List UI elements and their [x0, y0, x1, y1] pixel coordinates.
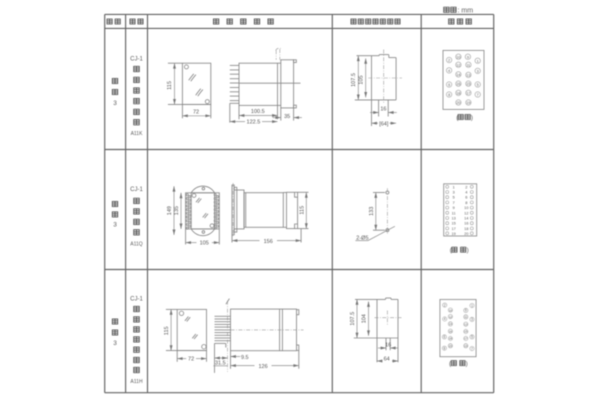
- svg-text:2: 2: [448, 59, 450, 63]
- svg-text:115: 115: [164, 326, 170, 335]
- svg-text:16: 16: [464, 222, 468, 226]
- svg-text:17: 17: [466, 91, 470, 95]
- svg-text:64: 64: [384, 356, 390, 362]
- svg-text:8: 8: [444, 346, 446, 350]
- svg-text:14: 14: [449, 322, 453, 326]
- svg-text:19: 19: [451, 232, 455, 236]
- svg-text:3: 3: [113, 340, 117, 347]
- svg-text:9: 9: [467, 55, 469, 59]
- svg-text:CJ-1: CJ-1: [130, 187, 143, 193]
- svg-text:4: 4: [444, 317, 446, 321]
- svg-text:18: 18: [449, 337, 453, 341]
- svg-text:6: 6: [444, 335, 446, 339]
- svg-text:3: 3: [477, 69, 479, 73]
- svg-text:9: 9: [465, 309, 467, 313]
- svg-text:CJ-1: CJ-1: [130, 296, 143, 302]
- svg-text:13: 13: [464, 322, 468, 326]
- svg-text:3: 3: [113, 222, 117, 229]
- svg-text:15: 15: [464, 330, 468, 334]
- svg-text:8: 8: [448, 93, 450, 97]
- svg-text:12: 12: [464, 211, 468, 215]
- svg-text:12: 12: [456, 63, 460, 67]
- svg-text:72: 72: [193, 109, 199, 115]
- svg-text:A11Q: A11Q: [130, 241, 143, 247]
- svg-text:16: 16: [449, 329, 453, 333]
- svg-text:3: 3: [113, 100, 117, 107]
- svg-text:107.5: 107.5: [350, 312, 356, 326]
- svg-text:: mm: : mm: [458, 7, 474, 14]
- svg-text:122.5: 122.5: [247, 120, 261, 126]
- svg-text:10: 10: [449, 308, 453, 312]
- svg-text:20: 20: [449, 344, 453, 348]
- svg-text:16: 16: [385, 343, 391, 349]
- svg-text:133: 133: [369, 207, 375, 216]
- svg-text:115: 115: [300, 206, 306, 215]
- svg-text:16: 16: [456, 82, 460, 86]
- svg-text:16: 16: [380, 107, 386, 113]
- svg-text:18: 18: [456, 91, 460, 95]
- svg-text:A11K: A11K: [131, 131, 144, 137]
- svg-text:15: 15: [466, 82, 470, 86]
- svg-text:100.5: 100.5: [251, 109, 265, 115]
- svg-text:13: 13: [466, 73, 470, 77]
- svg-text:): ): [466, 361, 468, 368]
- svg-text:4: 4: [448, 69, 450, 73]
- svg-text:14: 14: [456, 73, 460, 77]
- svg-text:11: 11: [452, 211, 456, 215]
- svg-text:105: 105: [200, 241, 209, 247]
- svg-text:20: 20: [464, 232, 468, 236]
- svg-text:[64]: [64]: [379, 121, 389, 127]
- svg-text:104: 104: [362, 314, 368, 323]
- svg-text:11: 11: [466, 63, 470, 67]
- svg-text:10: 10: [464, 206, 468, 210]
- svg-text:7: 7: [477, 93, 479, 97]
- svg-text:149: 149: [167, 206, 173, 215]
- svg-text:A11H: A11H: [130, 379, 143, 385]
- svg-text:): ): [471, 115, 473, 122]
- svg-text:18: 18: [464, 227, 468, 231]
- svg-text:72: 72: [188, 357, 194, 363]
- svg-text:3: 3: [471, 318, 473, 322]
- svg-text:19: 19: [466, 101, 470, 105]
- svg-text:): ): [467, 247, 469, 254]
- svg-text:1: 1: [471, 304, 473, 308]
- svg-text:14: 14: [464, 217, 468, 221]
- svg-text:CJ-1: CJ-1: [130, 56, 143, 62]
- svg-text:15: 15: [451, 222, 455, 226]
- svg-text:6: 6: [448, 83, 450, 87]
- svg-text:126: 126: [259, 364, 268, 370]
- svg-text:5: 5: [471, 335, 473, 339]
- svg-text:17: 17: [451, 227, 455, 231]
- svg-text:19: 19: [464, 344, 468, 348]
- svg-text:7: 7: [471, 347, 473, 351]
- svg-text:5: 5: [477, 83, 479, 87]
- svg-text:107.5: 107.5: [351, 73, 357, 87]
- svg-text:1: 1: [477, 59, 479, 63]
- svg-text:13: 13: [451, 217, 455, 221]
- svg-text:10: 10: [456, 55, 460, 59]
- svg-text:2: 2: [444, 303, 446, 307]
- svg-text:17: 17: [464, 337, 468, 341]
- svg-text:105: 105: [359, 75, 365, 84]
- svg-text:11: 11: [464, 315, 467, 319]
- svg-text:135: 135: [174, 206, 180, 215]
- svg-text:35: 35: [284, 114, 290, 120]
- svg-text:115: 115: [167, 81, 173, 90]
- svg-text:9.5: 9.5: [241, 355, 249, 361]
- svg-text:20: 20: [456, 101, 460, 105]
- svg-text:12: 12: [449, 315, 453, 319]
- svg-text:156: 156: [264, 239, 273, 245]
